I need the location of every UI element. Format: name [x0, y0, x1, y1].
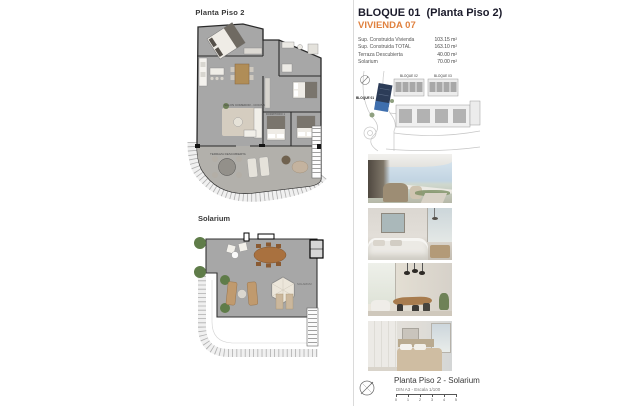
window — [427, 208, 452, 242]
spec-table: Sup. Construida Vivienda 103.15 m² Sup. … — [358, 36, 457, 66]
spec-row: Solarium 70.00 m² — [358, 59, 457, 67]
north-compass-icon — [361, 76, 370, 85]
bed — [397, 348, 442, 371]
floor-plan-piso2: SALON COMEDOR - COCINA TERRAZA DESCUBIER… — [140, 20, 348, 212]
pendant-lamp — [412, 269, 418, 273]
spec-row: Sup. Construida Vivienda 103.15 m² — [358, 36, 457, 44]
wicker-sofa — [383, 183, 408, 202]
floor-plan-title: Planta Piso 2 — [160, 8, 280, 17]
block-title: BLOQUE 01 (Planta Piso 2) — [358, 7, 502, 19]
scale-num: 1 — [407, 398, 409, 402]
floor — [368, 367, 397, 371]
section-divider — [353, 0, 354, 406]
dining-set — [430, 245, 450, 257]
scale-num: 4 — [443, 398, 445, 402]
spec-row: Terraza Descubierta 40.00 m² — [358, 51, 457, 59]
scale-num: 0 — [395, 398, 397, 402]
footer-caption: Planta Piso 2 - Solarium — [394, 376, 480, 385]
unit-subtitle: VIVIENDA 07 — [358, 20, 416, 31]
spec-value: 103.15 m² — [434, 37, 457, 43]
brochure-page: Planta Piso 2 — [0, 0, 620, 406]
planter — [258, 234, 274, 239]
spec-value: 70.00 m² — [437, 59, 457, 65]
spec-label: Sup. Construida TOTAL — [358, 44, 411, 50]
scale-bar: 0 1 2 3 4 5 — [396, 394, 458, 403]
photo-bedroom — [368, 321, 452, 371]
window — [368, 263, 396, 304]
photo-terrace-view — [368, 154, 452, 203]
solarium-plan: SOLARIUM — [186, 222, 348, 390]
cushion — [373, 240, 385, 246]
wardrobe — [244, 48, 262, 54]
pillow — [414, 344, 426, 350]
spec-value: 40.00 m² — [437, 52, 457, 58]
bloque01-label: BLOQUE 01 — [356, 96, 374, 100]
footer-compass-icon — [356, 377, 378, 399]
scale-line — [396, 394, 457, 395]
spec-value: 163.10 m² — [434, 44, 457, 50]
wall-art — [381, 213, 405, 233]
planter — [244, 233, 249, 241]
wardrobe — [368, 321, 397, 371]
bloque02-label: BLOQUE 02 — [400, 74, 418, 78]
living-room — [222, 103, 262, 138]
floor — [368, 311, 452, 316]
solarium-label: SOLARIUM — [297, 282, 312, 286]
footer-scale-note: DIN A3 - Escala 1/100 — [396, 387, 440, 392]
cushion — [390, 240, 402, 246]
spec-label: Sup. Construida Vivienda — [358, 37, 414, 43]
photo-dining-room — [368, 263, 452, 316]
site-plan: BLOQUE 02 BLOQUE 03 BLOQUE 01 — [356, 71, 482, 153]
spec-label: Solarium — [358, 59, 378, 65]
terrace-label: TERRAZA DESCUBIERTA — [210, 152, 246, 156]
spec-label: Terraza Descubierta — [358, 52, 403, 58]
living-label: SALON COMEDOR - COCINA — [224, 103, 265, 107]
plant — [439, 293, 449, 310]
bedroom-label: DORMITORIO 1 — [266, 112, 286, 116]
photo-living-room — [368, 208, 452, 260]
tree — [370, 113, 375, 118]
scale-num: 3 — [431, 398, 433, 402]
bloque03-label: BLOQUE 03 — [434, 74, 452, 78]
scale-num: 5 — [455, 398, 457, 402]
spec-row: Sup. Construida TOTAL 163.10 m² — [358, 44, 457, 52]
tree — [390, 99, 394, 103]
scale-num: 2 — [419, 398, 421, 402]
pillow — [400, 344, 412, 350]
highlighted-bloque01 — [374, 83, 392, 112]
buildings — [394, 79, 480, 127]
